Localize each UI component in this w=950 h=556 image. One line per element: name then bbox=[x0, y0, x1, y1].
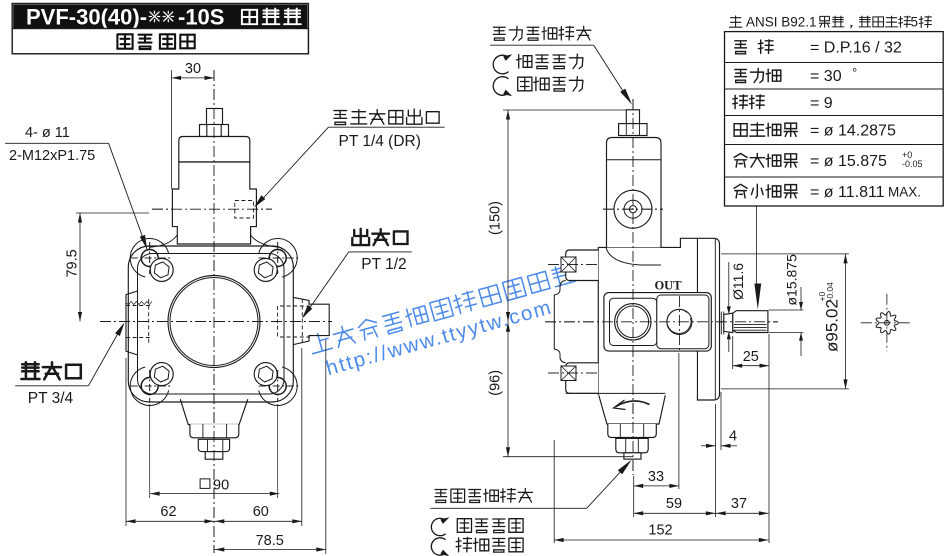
svg-text:PT 1/4 (DR): PT 1/4 (DR) bbox=[339, 133, 421, 150]
svg-text:ø95.02: ø95.02 bbox=[823, 299, 842, 352]
svg-text:59: 59 bbox=[666, 496, 682, 512]
svg-text:= 9: = 9 bbox=[810, 95, 833, 112]
svg-text:°: ° bbox=[852, 65, 857, 80]
svg-text:62: 62 bbox=[160, 504, 176, 520]
svg-text:-0.05: -0.05 bbox=[902, 159, 923, 169]
svg-text:30: 30 bbox=[185, 61, 201, 77]
svg-text:PT 3/4: PT 3/4 bbox=[28, 390, 74, 407]
svg-text:PVF-30(40)-: PVF-30(40)- bbox=[26, 5, 147, 30]
svg-text:78.5: 78.5 bbox=[256, 533, 284, 549]
svg-text:ANSI B92.1: ANSI B92.1 bbox=[746, 14, 817, 29]
svg-text:(96): (96) bbox=[488, 370, 504, 396]
svg-text:PT 1/2: PT 1/2 bbox=[361, 256, 406, 273]
svg-text:2-M12xP1.75: 2-M12xP1.75 bbox=[9, 148, 95, 164]
svg-text:-0.04: -0.04 bbox=[825, 282, 835, 302]
svg-text:5: 5 bbox=[911, 14, 919, 29]
svg-text:25: 25 bbox=[743, 349, 759, 365]
svg-text:152: 152 bbox=[648, 523, 672, 539]
svg-text:(150): (150) bbox=[488, 201, 504, 235]
svg-text:= ø 15.875: = ø 15.875 bbox=[810, 153, 887, 170]
svg-text:4- ø 11: 4- ø 11 bbox=[25, 125, 70, 141]
svg-text:Ø11.6: Ø11.6 bbox=[730, 263, 746, 300]
svg-text:-10S: -10S bbox=[178, 5, 224, 30]
svg-text:= ø 11.811: = ø 11.811 bbox=[810, 184, 885, 201]
svg-text:= 30: = 30 bbox=[810, 68, 842, 85]
svg-text:= ø 14.2875: = ø 14.2875 bbox=[810, 123, 896, 140]
svg-text:33: 33 bbox=[648, 469, 664, 485]
svg-text:90: 90 bbox=[213, 478, 229, 494]
svg-text:4: 4 bbox=[729, 429, 737, 445]
svg-text:37: 37 bbox=[731, 496, 747, 512]
svg-text:OUT: OUT bbox=[654, 279, 682, 293]
svg-text:ø15.875: ø15.875 bbox=[784, 254, 800, 306]
svg-text:MAX.: MAX. bbox=[888, 185, 921, 200]
svg-text:= D.P.16 / 32: = D.P.16 / 32 bbox=[810, 40, 902, 57]
svg-text:79.5: 79.5 bbox=[65, 249, 81, 277]
svg-text:60: 60 bbox=[253, 504, 269, 520]
